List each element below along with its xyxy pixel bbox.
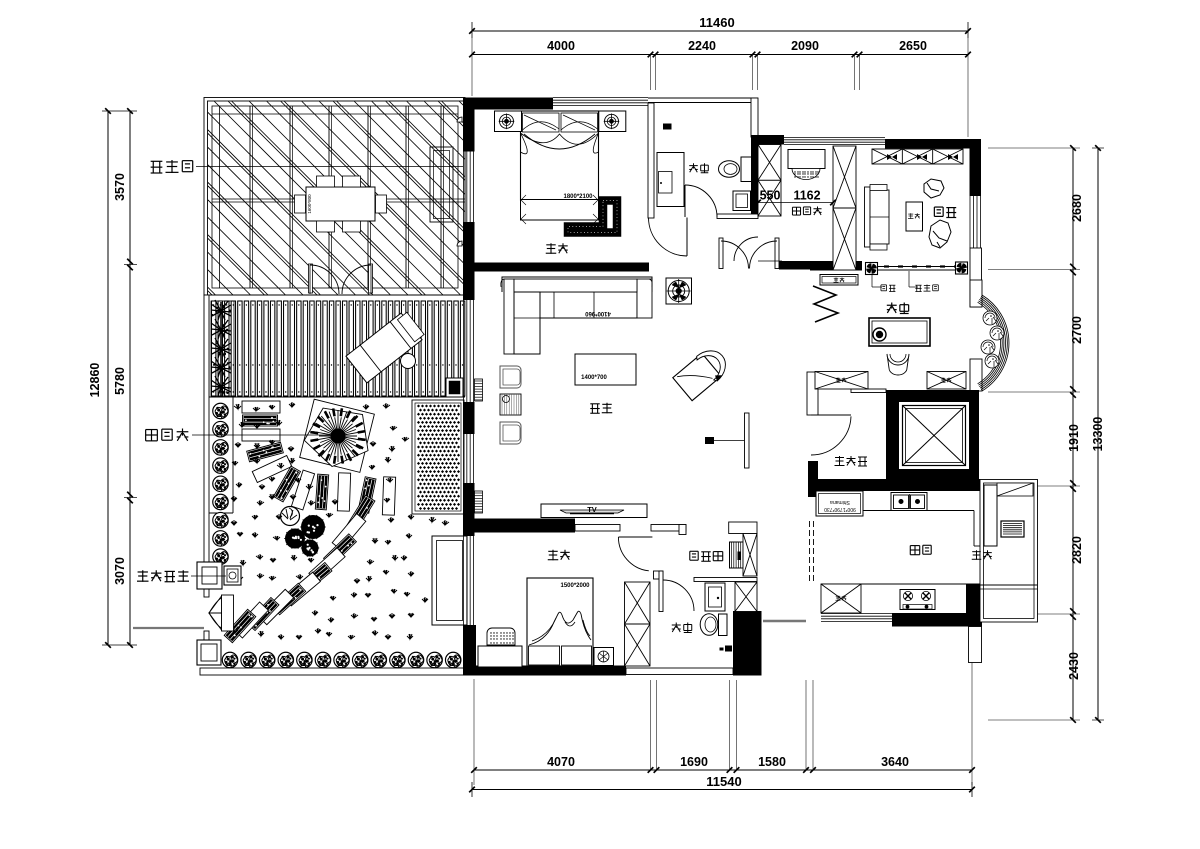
svg-text:2090: 2090 [791, 39, 819, 53]
svg-text:2820: 2820 [1070, 536, 1084, 564]
svg-text:Shimana: Shimana [830, 499, 850, 505]
svg-text:1800*2100: 1800*2100 [563, 194, 593, 200]
svg-text:3070: 3070 [113, 557, 127, 585]
svg-text:4000: 4000 [547, 39, 575, 53]
svg-text:TV: TV [587, 505, 597, 514]
svg-text:1162: 1162 [793, 189, 820, 203]
svg-text:11540: 11540 [706, 774, 741, 789]
svg-text:2430: 2430 [1067, 652, 1081, 680]
svg-text:2680: 2680 [1070, 194, 1084, 222]
svg-text:4070: 4070 [547, 755, 575, 769]
svg-text:1600*800: 1600*800 [307, 194, 312, 214]
svg-text:900*1790*730: 900*1790*730 [824, 506, 856, 512]
svg-text:550: 550 [760, 189, 781, 203]
svg-text:2240: 2240 [688, 39, 716, 53]
svg-text:3570: 3570 [113, 173, 127, 201]
svg-text:1910: 1910 [1067, 424, 1081, 452]
svg-text:12860: 12860 [88, 363, 102, 398]
svg-text:2700: 2700 [1070, 316, 1084, 344]
svg-text:1400*700: 1400*700 [581, 375, 607, 381]
svg-text:1500*2000: 1500*2000 [560, 583, 590, 589]
svg-text:11460: 11460 [699, 15, 734, 30]
svg-text:5780: 5780 [113, 367, 127, 395]
svg-text:3640: 3640 [881, 755, 909, 769]
svg-text:2650: 2650 [899, 39, 927, 53]
svg-text:4100*960: 4100*960 [584, 310, 610, 316]
svg-text:13300: 13300 [1091, 417, 1105, 452]
svg-text:1690: 1690 [680, 755, 708, 769]
svg-text:1580: 1580 [758, 755, 786, 769]
